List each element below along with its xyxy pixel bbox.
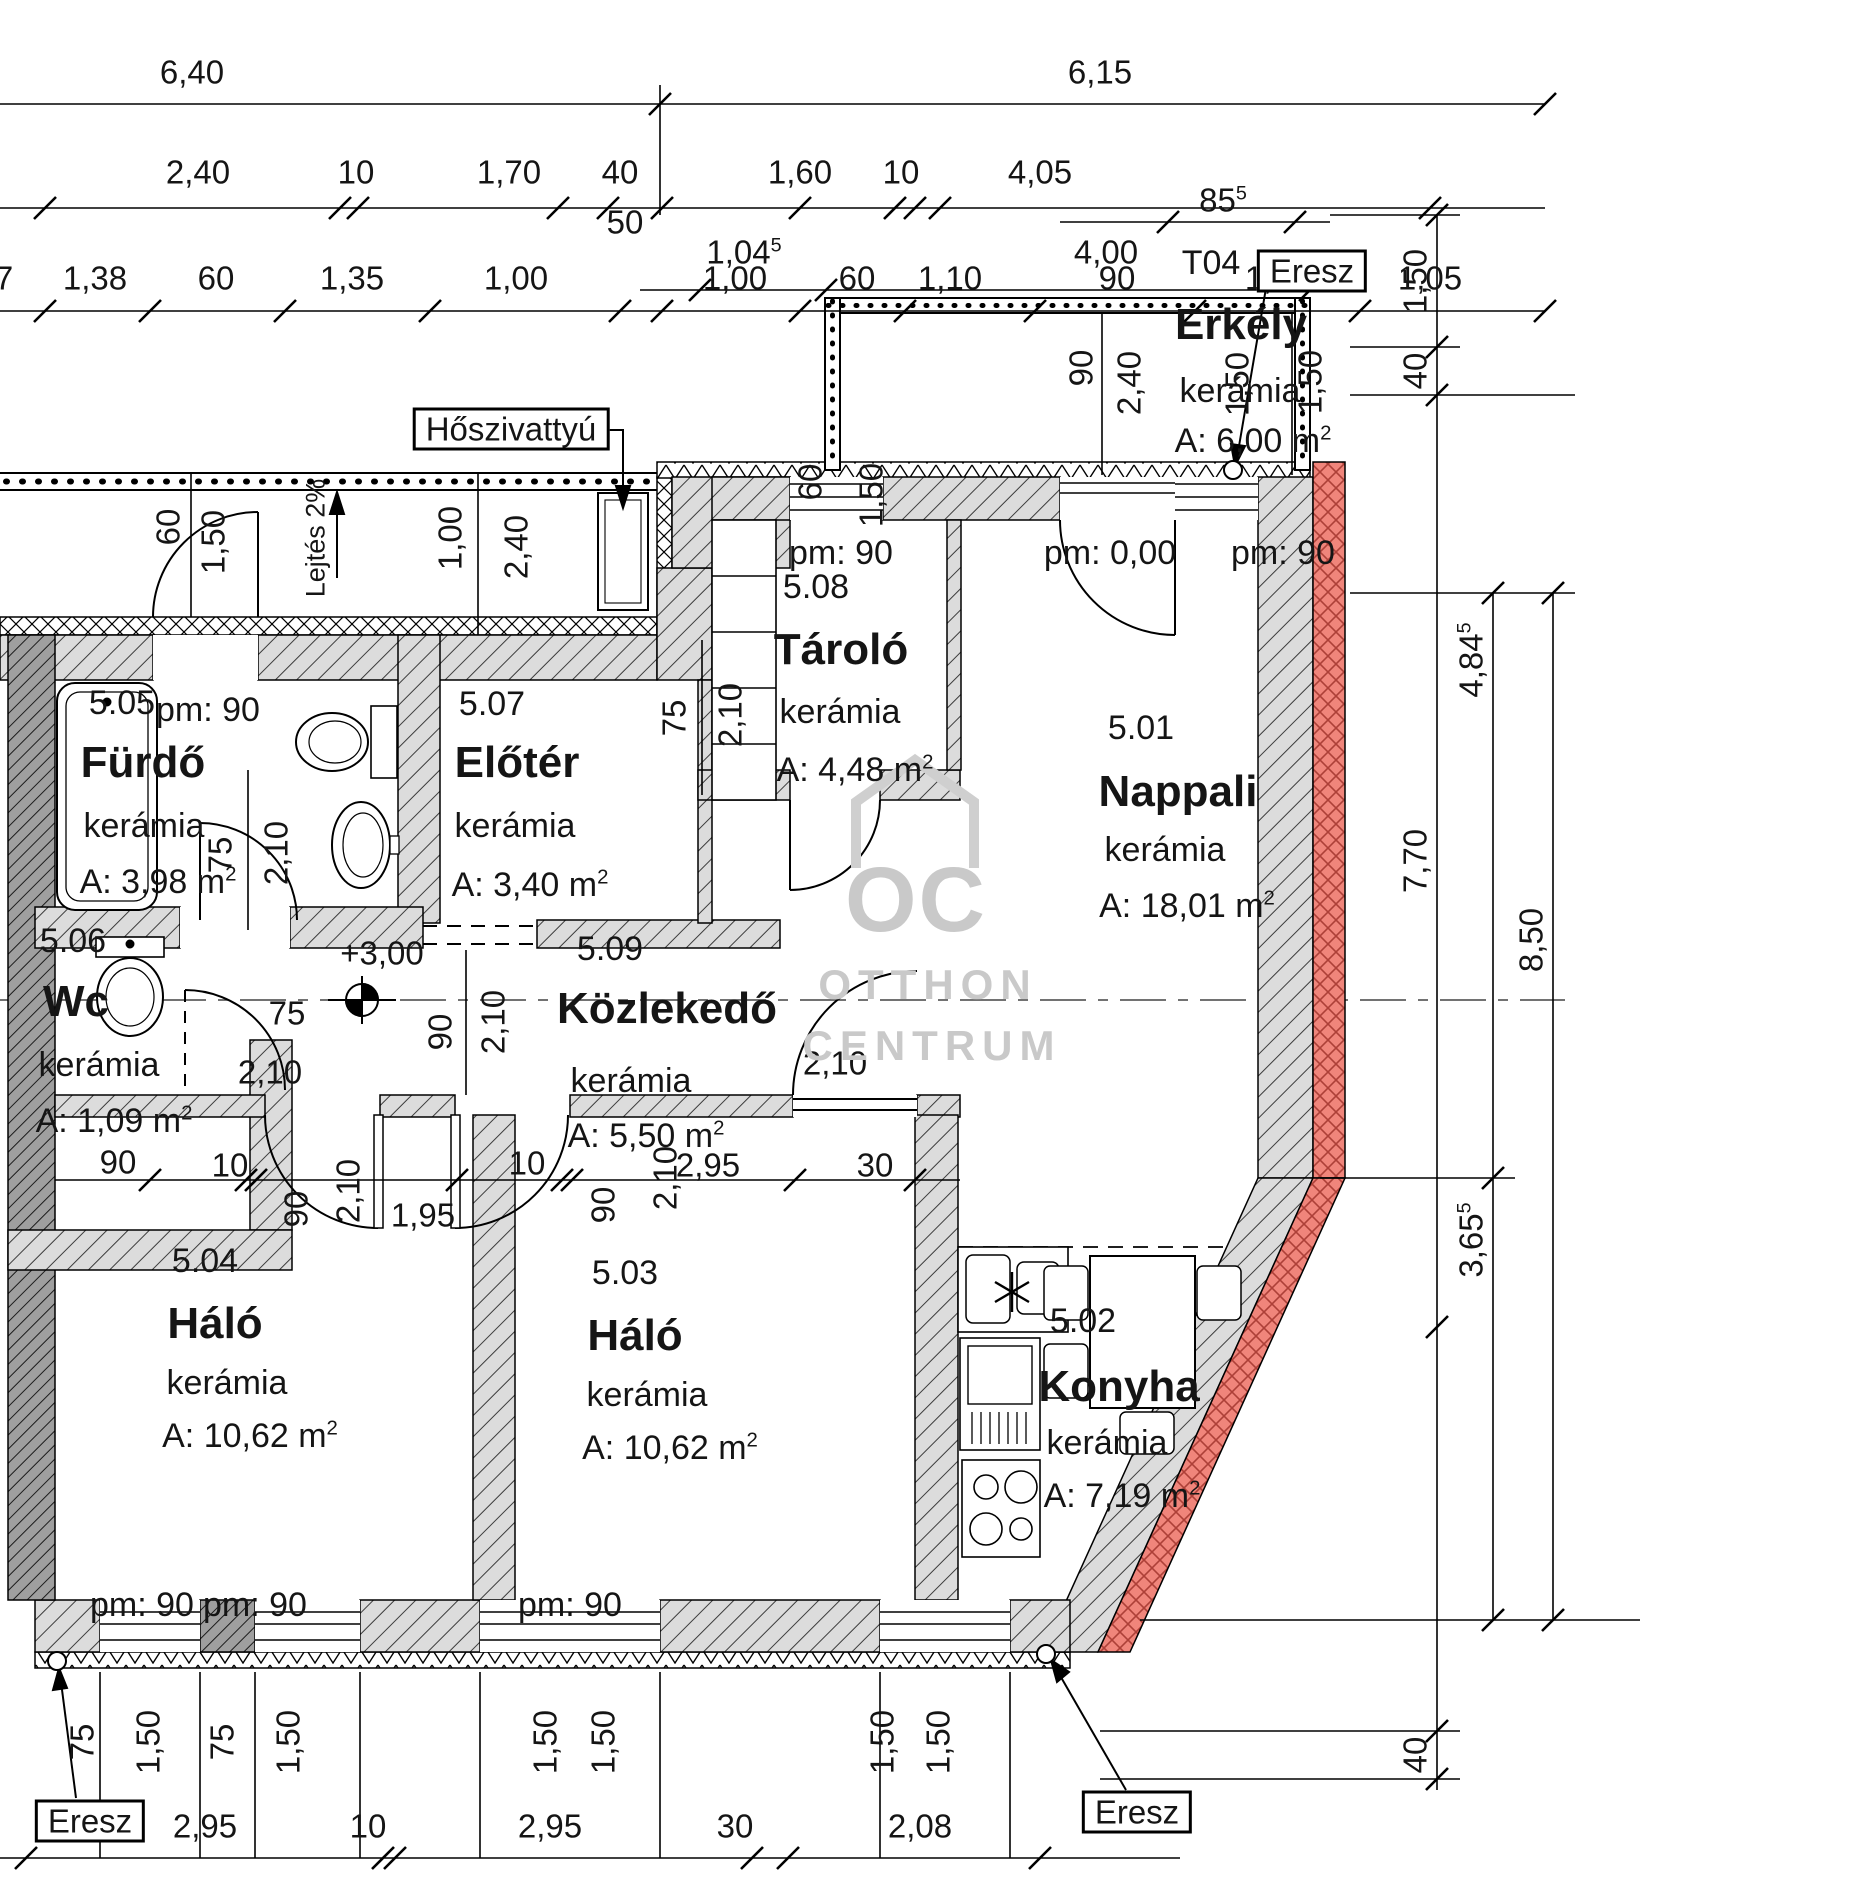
parapet-label: pm: 90: [1231, 536, 1335, 570]
dimension-label: 1,00: [484, 262, 548, 295]
room-number: 5.09: [577, 932, 643, 966]
dimension-label: 1,50: [272, 1710, 305, 1774]
dimension-label: 2,40: [500, 515, 533, 579]
dimension-label: 2,10: [238, 1056, 302, 1089]
watermark-text: CENTRUM: [803, 1025, 1062, 1067]
room-number: 5.04: [172, 1244, 238, 1278]
dimension-label: 75: [206, 1724, 239, 1761]
eresz-label-bottom-left: Eresz: [35, 1800, 145, 1843]
dimension-label: 2,10: [260, 821, 293, 885]
room-number: 5.05: [89, 686, 155, 720]
dimension-label: 40: [602, 156, 639, 189]
room-name: Előtér: [455, 741, 580, 785]
room-number: 5.02: [1050, 1304, 1116, 1338]
dimension-label: 4,05: [1008, 156, 1072, 189]
room-name: Háló: [167, 1302, 262, 1346]
dimension-label: 10: [883, 156, 920, 189]
dimension-label: 1,045: [706, 236, 781, 269]
dimension-label: 2,10: [332, 1159, 365, 1223]
dimension-label: 1,38: [63, 262, 127, 295]
dimension-label: 2,40: [166, 156, 230, 189]
dimension-label: 1,50: [855, 463, 888, 527]
dimension-label: 6,15: [1068, 56, 1132, 89]
dimension-label: 1,10: [918, 262, 982, 295]
room-material: kerámia: [167, 1366, 288, 1400]
dimension-label: 2,40: [1113, 351, 1146, 415]
dimension-label: 1,60: [768, 156, 832, 189]
room-material: kerámia: [780, 695, 901, 729]
dimension-label: 30: [717, 1810, 754, 1843]
room-number: 5.06: [40, 924, 106, 958]
room-material: kerámia: [1180, 374, 1301, 408]
dimension-label: 30: [857, 1149, 894, 1182]
dimension-label: 6,40: [160, 56, 224, 89]
room-area: A: 3,98 m2: [80, 865, 237, 899]
dimension-label: 60: [152, 509, 185, 546]
room-material: kerámia: [455, 809, 576, 843]
room-material: kerámia: [84, 809, 205, 843]
dimension-label: 2,10: [477, 990, 510, 1054]
room-name: Erkély: [1175, 303, 1307, 347]
dimension-label: 7,70: [1399, 829, 1432, 893]
room-material: kerámia: [39, 1048, 160, 1082]
dimension-label: 10: [212, 1149, 249, 1182]
floorplan-canvas: 6,406,152,40101,7040501,60104,0571,38601…: [0, 0, 1852, 1892]
dimension-label: 60: [198, 262, 235, 295]
room-area: A: 10,62 m2: [162, 1419, 338, 1453]
dimension-label: 75: [66, 1724, 99, 1761]
dimension-label: 1,50: [866, 1710, 899, 1774]
level-marker-label: +3,00: [340, 937, 424, 970]
dimension-label: 40: [1399, 353, 1432, 390]
eresz-label-bottom-right: Eresz: [1082, 1791, 1192, 1834]
labels-layer: 6,406,152,40101,7040501,60104,0571,38601…: [0, 0, 1852, 1892]
dimension-label: 4,845: [1455, 622, 1488, 697]
dimension-label: 2,10: [714, 683, 747, 747]
room-material: kerámia: [571, 1064, 692, 1098]
dimension-label: 90: [1065, 350, 1098, 387]
dimension-label: 7: [0, 262, 13, 295]
parapet-label: pm: 90: [203, 1588, 307, 1622]
room-name: Fürdő: [81, 741, 206, 785]
dimension-label: 1,35: [320, 262, 384, 295]
dimension-label: 4,00: [1074, 236, 1138, 269]
room-area: A: 5,50 m2: [568, 1119, 725, 1153]
heatpump-label: Hőszivattyú: [413, 408, 610, 451]
room-name: Tároló: [774, 628, 908, 672]
parapet-label: pm: 90: [789, 536, 893, 570]
room-area: A: 4,48 m2: [777, 753, 934, 787]
dimension-label: 1,50: [529, 1710, 562, 1774]
room-material: kerámia: [1047, 1426, 1168, 1460]
parapet-label: pm: 0,00: [1044, 536, 1176, 570]
room-number: 5.08: [783, 570, 849, 604]
eresz-label-top: Eresz: [1257, 250, 1367, 293]
watermark-logo: OC: [845, 854, 987, 946]
dimension-label: 75: [269, 997, 306, 1030]
room-name: Közlekedő: [557, 987, 777, 1031]
room-material: kerámia: [587, 1378, 708, 1412]
dimension-label: 90: [100, 1146, 137, 1179]
dimension-label: Lejtés 2%: [303, 479, 330, 598]
dimension-label: 1,50: [587, 1710, 620, 1774]
room-name: Nappali: [1099, 770, 1258, 814]
dimension-label: 10: [509, 1147, 546, 1180]
dimension-label: 10: [338, 156, 375, 189]
room-number: 5.03: [592, 1256, 658, 1290]
dimension-label: 1,95: [391, 1199, 455, 1232]
dimension-label: 2,08: [888, 1810, 952, 1843]
watermark-text: OTTHON: [818, 964, 1037, 1006]
dimension-label: 1,00: [434, 506, 467, 570]
room-area: A: 3,40 m2: [452, 868, 609, 902]
dimension-label: 1,50: [922, 1710, 955, 1774]
parapet-label: pm: 90: [90, 1588, 194, 1622]
room-area: A: 6,00 m2: [1175, 424, 1332, 458]
room-area: A: 7,19 m2: [1044, 1479, 1201, 1513]
dimension-label: 60: [839, 262, 876, 295]
dimension-label: 50: [607, 206, 644, 239]
dimension-label: 2,95: [173, 1810, 237, 1843]
dimension-label: 10: [350, 1810, 387, 1843]
room-material: kerámia: [1105, 833, 1226, 867]
dimension-label: 1,50: [132, 1710, 165, 1774]
dimension-label: 1,70: [477, 156, 541, 189]
room-name: Háló: [587, 1314, 682, 1358]
room-number: T04: [1182, 246, 1241, 280]
dimension-label: 60: [794, 464, 827, 501]
room-name: Konyha: [1038, 1365, 1199, 1409]
dimension-label: 40: [1399, 1737, 1432, 1774]
room-area: A: 1,09 m2: [36, 1104, 193, 1138]
dimension-label: 1,50: [197, 510, 230, 574]
dimension-label: 2,95: [518, 1810, 582, 1843]
parapet-label: pm: 90: [518, 1588, 622, 1622]
parapet-label: pm: 90: [156, 693, 260, 727]
dimension-label: 1,50: [1399, 249, 1432, 313]
dimension-label: 75: [658, 700, 691, 737]
room-area: A: 10,62 m2: [582, 1431, 758, 1465]
dimension-label: 90: [280, 1191, 313, 1228]
dimension-label: 3,655: [1455, 1202, 1488, 1277]
room-number: 5.01: [1108, 711, 1174, 745]
dimension-label: 90: [424, 1014, 457, 1051]
room-area: A: 18,01 m2: [1099, 889, 1275, 923]
room-name: Wc: [43, 980, 109, 1024]
dimension-label: 8,50: [1515, 908, 1548, 972]
room-number: 5.07: [459, 687, 525, 721]
dimension-label: 90: [587, 1187, 620, 1224]
dimension-label: 855: [1199, 184, 1247, 217]
